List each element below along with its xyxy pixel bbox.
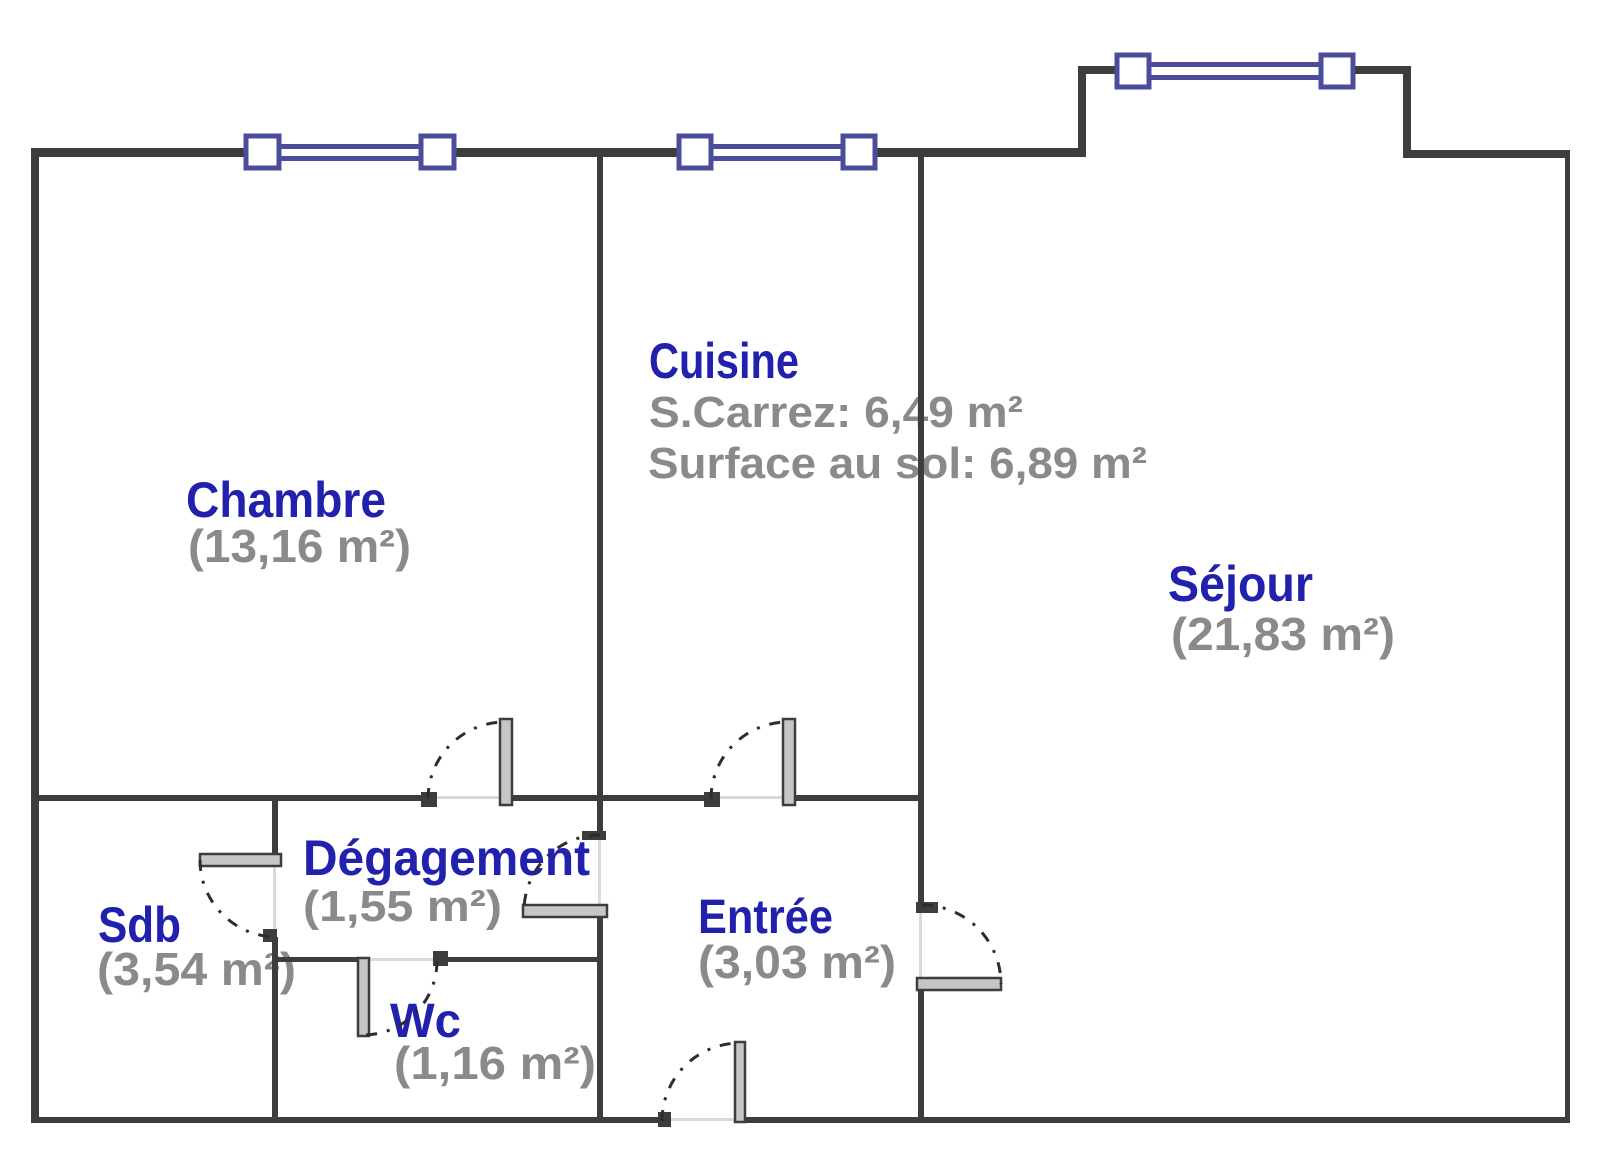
svg-text:(3,03 m²): (3,03 m²)	[698, 936, 896, 988]
svg-text:Séjour: Séjour	[1168, 556, 1313, 612]
svg-text:(1,16 m²): (1,16 m²)	[394, 1037, 596, 1089]
svg-text:(13,16 m²): (13,16 m²)	[188, 520, 411, 572]
svg-text:Dégagement: Dégagement	[303, 830, 590, 886]
svg-text:(1,55 m²): (1,55 m²)	[303, 882, 502, 931]
svg-text:S.Carrez: 6,49 m²: S.Carrez: 6,49 m²	[649, 388, 1023, 437]
svg-text:(21,83 m²): (21,83 m²)	[1171, 608, 1395, 660]
svg-text:Surface au sol: 6,89 m²: Surface au sol: 6,89 m²	[648, 439, 1147, 488]
svg-text:Cuisine: Cuisine	[649, 333, 799, 389]
svg-text:(3,54 m²): (3,54 m²)	[97, 943, 296, 995]
